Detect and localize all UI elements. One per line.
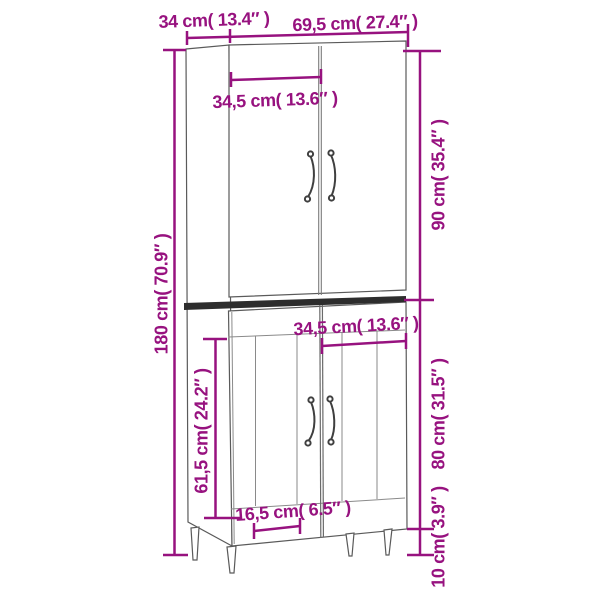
label-lower-section-height: 80 cm( 31.5″ ) [428,358,448,469]
label-upper-section-height: 90 cm( 35.4″ ) [428,119,448,230]
cabinet-diagram-svg: 34 cm( 13.4″ ) 69,5 cm( 27.4″ ) 34,5 cm(… [0,0,600,600]
leg-front-left [227,546,236,573]
label-total-height: 180 cm( 70.9″ ) [151,233,171,354]
dimension-diagram: 34 cm( 13.4″ ) 69,5 cm( 27.4″ ) 34,5 cm(… [0,0,600,600]
label-depth: 34 cm( 13.4″ ) [158,8,270,32]
label-leg-height: 10 cm( 3.9″ ) [428,486,448,588]
leg-back-left [191,527,199,560]
label-lower-door-height: 61,5 cm( 24.2″ ) [191,368,211,494]
cabinet-illustration [184,41,407,573]
leg-mid-right [346,533,354,556]
leg-front-right [384,529,392,555]
